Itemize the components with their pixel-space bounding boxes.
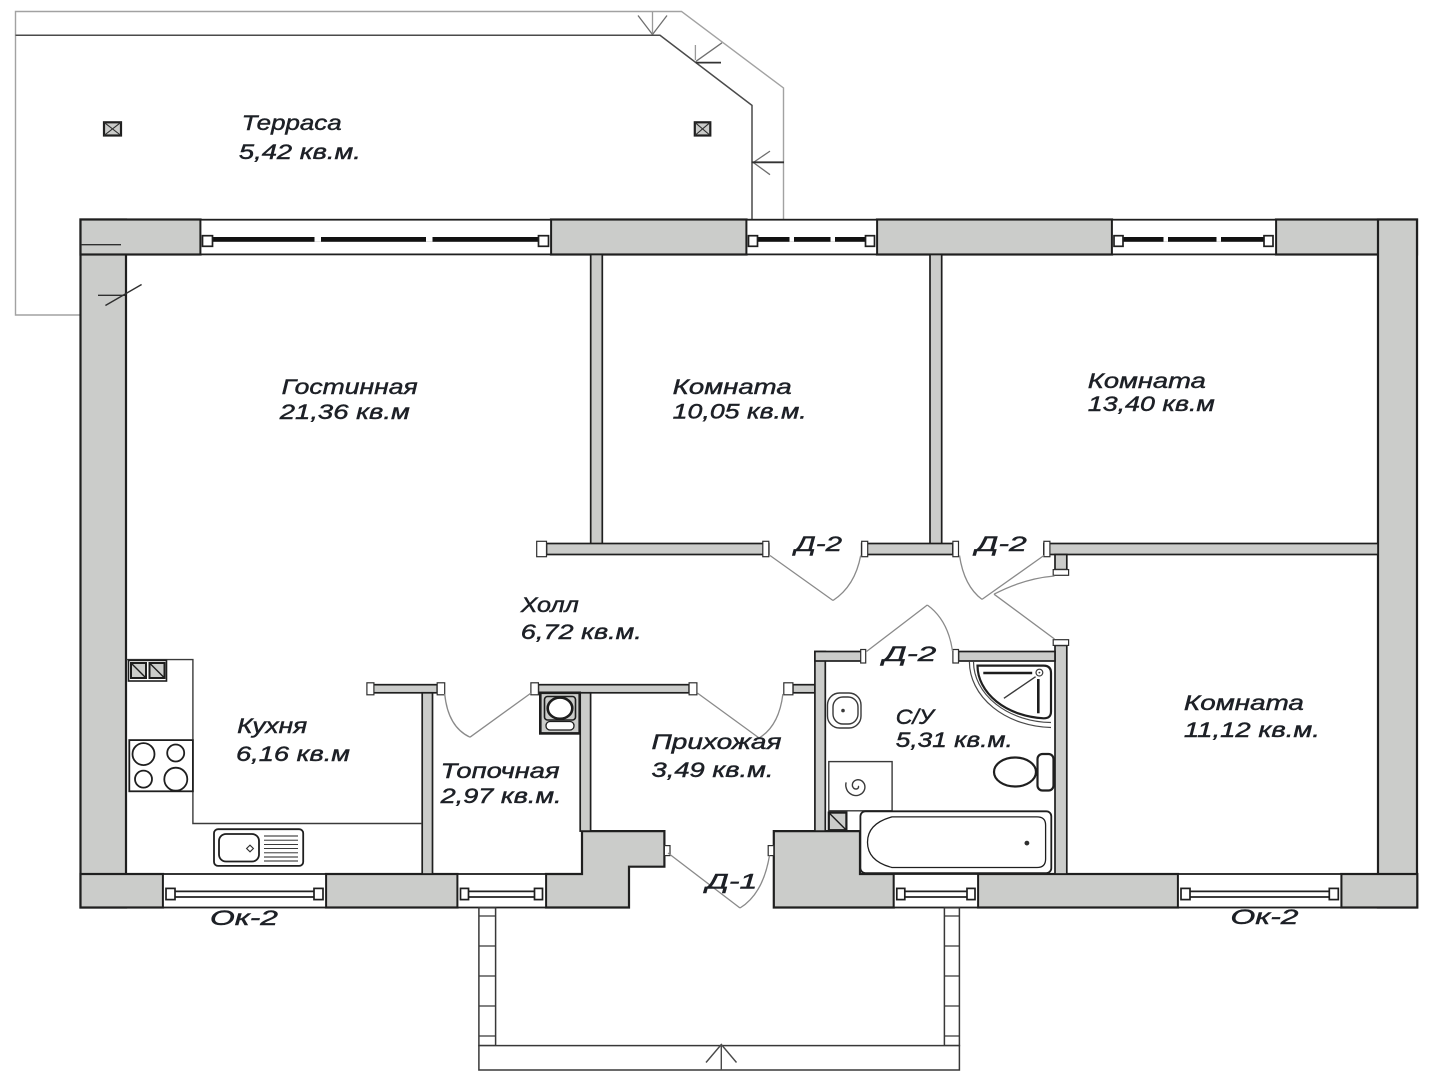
svg-text:Д-1: Д-1 — [703, 871, 757, 894]
svg-text:10,05 кв.м.: 10,05 кв.м. — [673, 401, 807, 424]
svg-text:Комната: Комната — [673, 376, 792, 399]
svg-text:5,31 кв.м.: 5,31 кв.м. — [896, 729, 1013, 752]
svg-text:Топочная: Топочная — [441, 760, 560, 783]
svg-text:6,72 кв.м.: 6,72 кв.м. — [521, 621, 642, 644]
svg-text:Ок-2: Ок-2 — [1231, 906, 1299, 929]
svg-text:Прихожая: Прихожая — [652, 731, 782, 754]
svg-text:Гостинная: Гостинная — [282, 376, 418, 399]
svg-text:Д-2: Д-2 — [973, 533, 1028, 556]
svg-text:2,97 кв.м.: 2,97 кв.м. — [439, 785, 561, 808]
svg-text:13,40 кв.м: 13,40 кв.м — [1088, 393, 1215, 416]
svg-text:Кухня: Кухня — [237, 715, 307, 738]
svg-text:Холл: Холл — [520, 594, 579, 617]
svg-text:Д-2: Д-2 — [880, 643, 937, 666]
svg-text:Комната: Комната — [1184, 692, 1304, 715]
svg-text:Комната: Комната — [1088, 370, 1206, 393]
svg-text:21,36 кв.м: 21,36 кв.м — [278, 401, 409, 424]
svg-text:11,12 кв.м.: 11,12 кв.м. — [1184, 719, 1320, 742]
svg-text:5,42 кв.м.: 5,42 кв.м. — [239, 141, 361, 164]
svg-text:Терраса: Терраса — [242, 112, 342, 135]
svg-text:3,49 кв.м.: 3,49 кв.м. — [652, 759, 774, 782]
svg-text:6,16 кв.м: 6,16 кв.м — [236, 743, 350, 766]
svg-text:Д-2: Д-2 — [792, 533, 842, 556]
svg-text:С/У: С/У — [896, 706, 937, 729]
svg-text:Ок-2: Ок-2 — [210, 907, 278, 930]
